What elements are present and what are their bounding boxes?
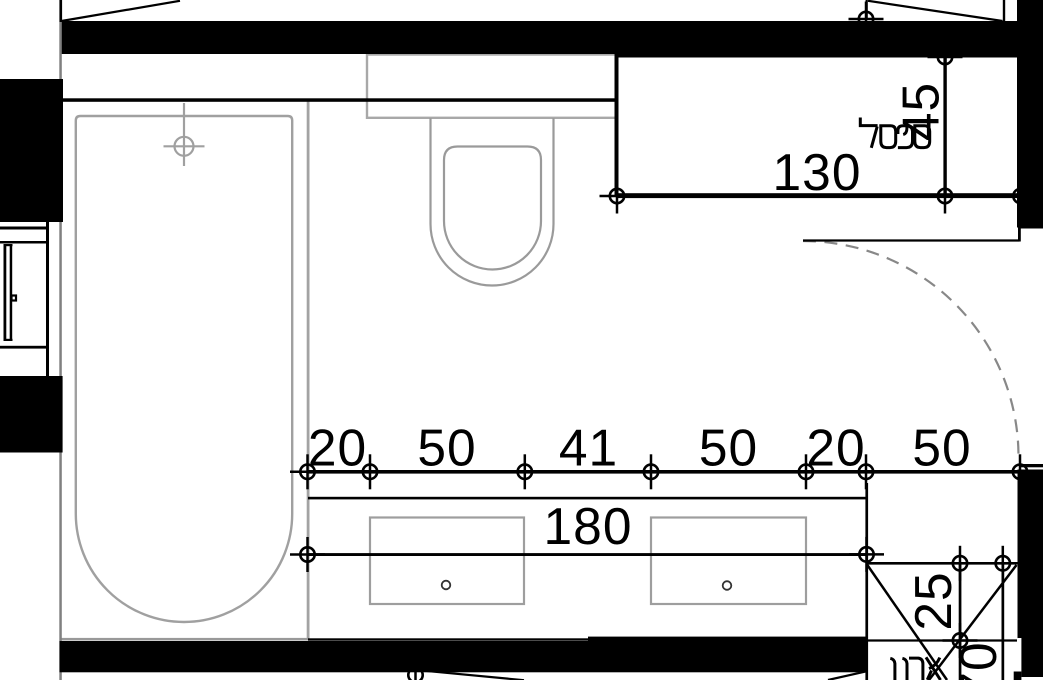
- svg-text:20: 20: [308, 419, 367, 477]
- svg-text:50: 50: [417, 419, 476, 477]
- svg-text:70: 70: [949, 641, 1007, 680]
- svg-text:25: 25: [904, 571, 962, 630]
- svg-text:180: 180: [544, 497, 633, 555]
- svg-text:50: 50: [912, 419, 971, 477]
- svg-text:50: 50: [699, 419, 758, 477]
- svg-text:41: 41: [559, 419, 618, 477]
- svg-text:130: 130: [773, 143, 862, 201]
- svg-text:20: 20: [806, 419, 865, 477]
- svg-text:45: 45: [892, 82, 950, 141]
